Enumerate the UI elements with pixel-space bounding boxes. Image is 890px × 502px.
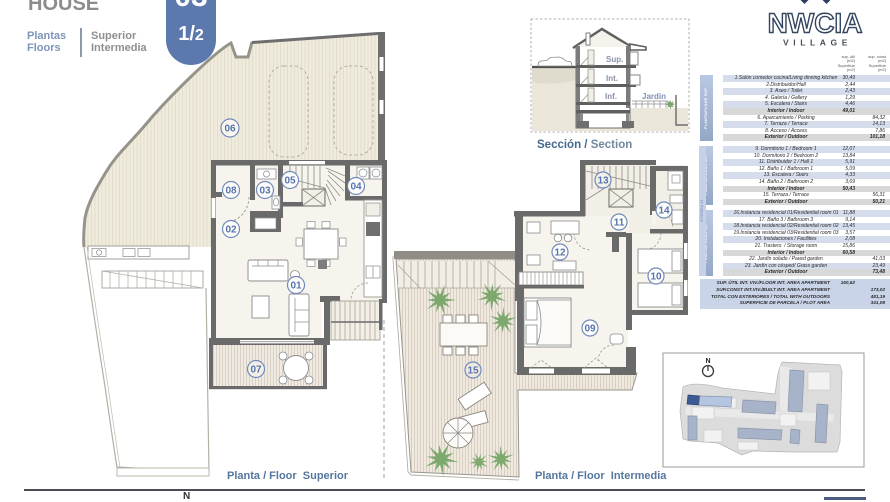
svg-text:09: 09 bbox=[584, 324, 596, 335]
svg-text:04: 04 bbox=[350, 182, 362, 193]
svg-text:15: 15 bbox=[467, 366, 479, 377]
svg-text:13: 13 bbox=[597, 176, 609, 187]
svg-text:12: 12 bbox=[554, 248, 566, 259]
svg-text:07: 07 bbox=[250, 365, 262, 376]
svg-text:14: 14 bbox=[658, 206, 670, 217]
svg-text:01: 01 bbox=[290, 281, 302, 292]
svg-text:Jardin: Jardin bbox=[642, 92, 666, 101]
svg-text:06: 06 bbox=[224, 124, 236, 135]
svg-text:02: 02 bbox=[225, 225, 237, 236]
svg-text:N: N bbox=[705, 358, 710, 365]
svg-text:Int.: Int. bbox=[606, 74, 618, 83]
svg-text:NWCIA: NWCIA bbox=[768, 8, 863, 39]
svg-text:10: 10 bbox=[650, 272, 662, 283]
svg-text:08: 08 bbox=[225, 186, 237, 197]
svg-text:Inf.: Inf. bbox=[605, 92, 617, 101]
svg-text:05: 05 bbox=[284, 176, 296, 187]
svg-text:03: 03 bbox=[259, 186, 271, 197]
svg-text:Sup.: Sup. bbox=[606, 55, 623, 64]
svg-text:11: 11 bbox=[614, 218, 625, 229]
svg-text:VILLAGE: VILLAGE bbox=[783, 38, 852, 48]
